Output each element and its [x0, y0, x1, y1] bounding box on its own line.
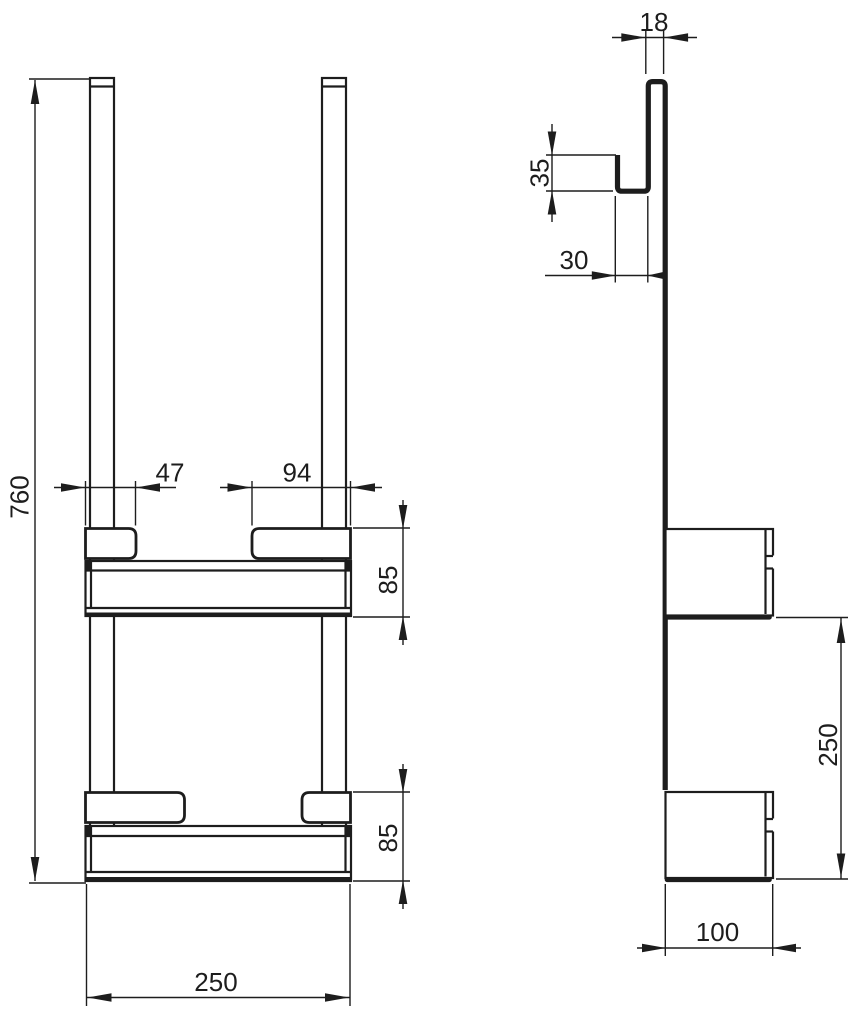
- arrowhead: [647, 272, 665, 280]
- dim-lower-basket-height: 85: [353, 764, 410, 909]
- arrowhead: [399, 505, 408, 529]
- upper-basket-front: [86, 561, 352, 616]
- arrowhead: [399, 769, 408, 793]
- arrowhead: [399, 880, 408, 904]
- dim-overall-height: 760: [5, 79, 91, 883]
- right-rail: [322, 78, 346, 828]
- upper-basket-side: [666, 529, 776, 617]
- arrowhead: [772, 944, 796, 953]
- dim-label-lower-basket-height: 85: [373, 824, 403, 853]
- arrowhead: [31, 857, 40, 881]
- arrowhead: [61, 483, 85, 492]
- drawing-canvas: 760 47 94 85: [0, 0, 854, 1020]
- dim-label-hook-depth: 30: [560, 245, 589, 275]
- arrowhead: [88, 993, 112, 1002]
- dim-label-hook-return-height: 35: [525, 159, 555, 188]
- arrowhead: [351, 483, 375, 492]
- upper-left-mount: [86, 529, 137, 559]
- lower-basket-front: [86, 826, 352, 881]
- arrowhead: [642, 944, 666, 953]
- arrowhead: [31, 80, 40, 104]
- dim-label-overall-height: 760: [5, 475, 35, 518]
- arrowhead: [548, 132, 557, 156]
- technical-drawing: 760 47 94 85: [0, 0, 854, 1020]
- dim-label-upper-basket-height: 85: [373, 566, 403, 595]
- arrowhead: [325, 993, 349, 1002]
- front-view: 760 47 94 85: [5, 78, 411, 1006]
- lower-basket-side: [666, 792, 776, 880]
- side-view: 18 35 30 250: [525, 7, 849, 956]
- dim-label-basket-spacing: 250: [813, 723, 843, 766]
- arrowhead: [592, 271, 616, 280]
- dim-basket-depth: 100: [637, 884, 801, 956]
- dim-basket-spacing: 250: [776, 618, 848, 880]
- left-rail: [90, 78, 114, 828]
- dim-label-right-mount-width: 94: [283, 458, 312, 488]
- dim-label-overall-width: 250: [194, 967, 237, 997]
- arrowhead: [399, 616, 408, 640]
- upper-right-mount: [252, 529, 351, 559]
- dim-upper-basket-height: 85: [353, 500, 410, 645]
- dim-overall-width: 250: [87, 884, 351, 1006]
- arrowhead: [837, 854, 846, 878]
- dim-label-left-mount-width: 47: [156, 458, 185, 488]
- dim-hook-depth: 30: [545, 196, 665, 283]
- lower-left-mount: [86, 793, 185, 823]
- arrowhead: [837, 619, 846, 643]
- arrowhead: [228, 483, 252, 492]
- dim-hook-return-height: 35: [525, 124, 617, 222]
- dim-hook-gap-width: 18: [612, 7, 697, 74]
- dim-label-basket-depth: 100: [696, 917, 739, 947]
- glass-hook-profile: [618, 82, 666, 790]
- dim-label-hook-gap-width: 18: [640, 7, 669, 37]
- arrowhead: [548, 191, 557, 215]
- dim-right-mount-width: 94: [220, 458, 382, 526]
- dim-left-mount-width: 47: [54, 458, 184, 526]
- lower-right-mount: [302, 793, 351, 823]
